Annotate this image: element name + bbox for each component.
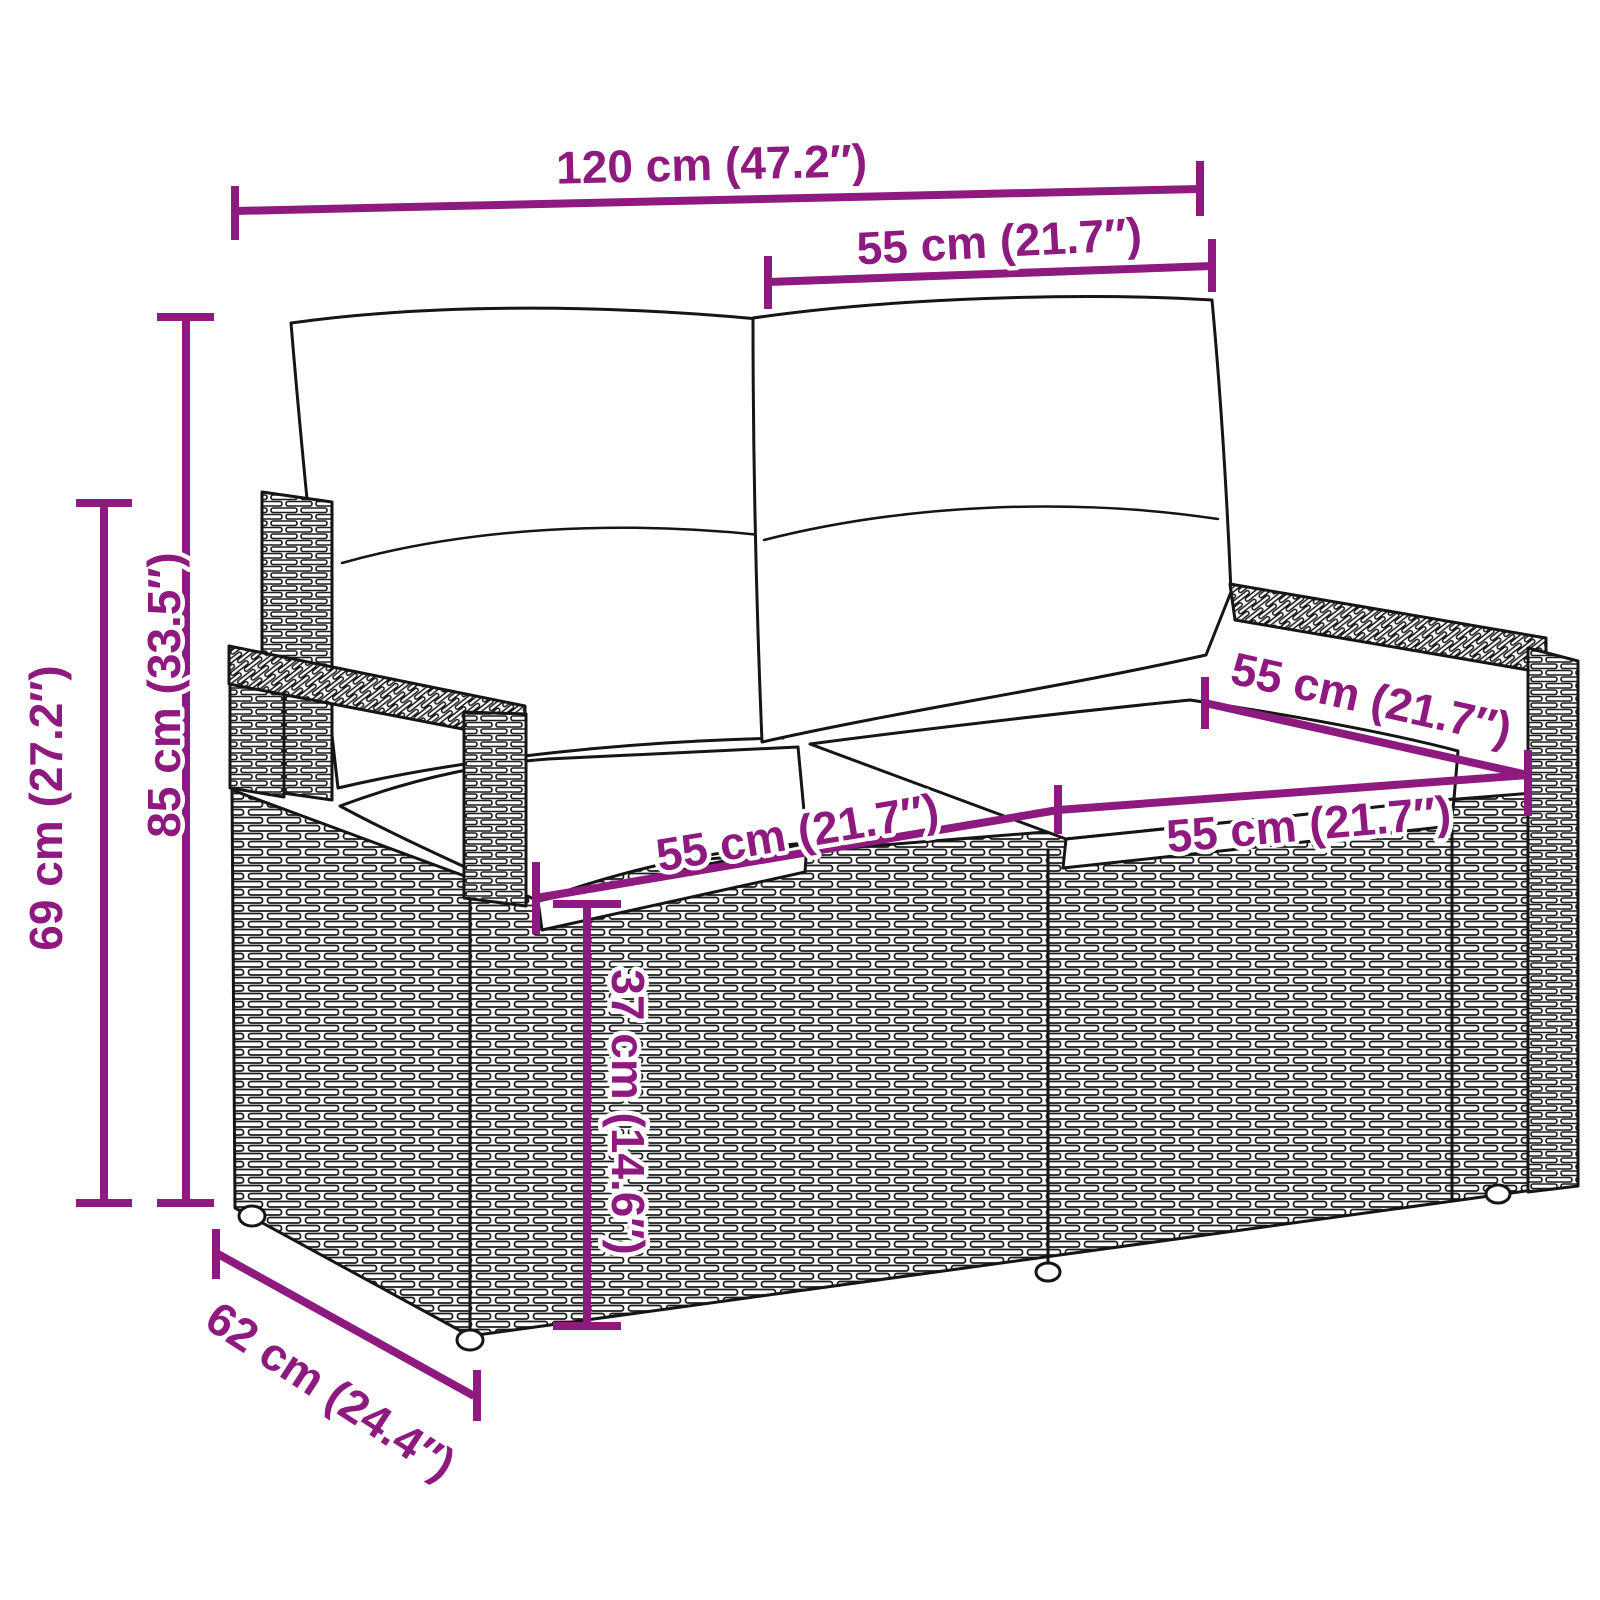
dim-label-seat-height: 37 cm (14.6″) <box>602 969 654 1254</box>
dim-label-total-height: 85 cm (33.5″) <box>138 552 190 837</box>
dim-label-overall-width: 120 cm (47.2″) <box>556 134 868 194</box>
armrest-right-post <box>1528 648 1578 1192</box>
diagram-canvas: 120 cm (47.2″) 55 cm (21.7″) 85 cm (33.5… <box>0 0 1600 1600</box>
diagram-root: 120 cm (47.2″) 55 cm (21.7″) 85 cm (33.5… <box>0 0 1600 1600</box>
dim-label-back-section-width: 55 cm (21.7″) <box>855 208 1143 275</box>
base-side-panel <box>232 790 470 1336</box>
bench-foot <box>457 1330 483 1350</box>
back-cushion-left <box>291 308 783 788</box>
dim-back-section-width: 55 cm (21.7″) <box>768 208 1212 309</box>
back-cushion-right <box>753 297 1231 742</box>
bench-foot <box>1486 1185 1510 1203</box>
bench-foot <box>1036 1263 1060 1281</box>
dim-line <box>235 189 1200 211</box>
armrest-left-front-post <box>464 712 526 906</box>
dim-total-height: 85 cm (33.5″) <box>138 317 214 1203</box>
dim-label-frame-height: 69 cm (27.2″) <box>20 665 72 950</box>
dim-frame-height: 69 cm (27.2″) <box>20 503 132 1203</box>
dim-line <box>768 266 1212 282</box>
bench-foot <box>239 1206 265 1226</box>
